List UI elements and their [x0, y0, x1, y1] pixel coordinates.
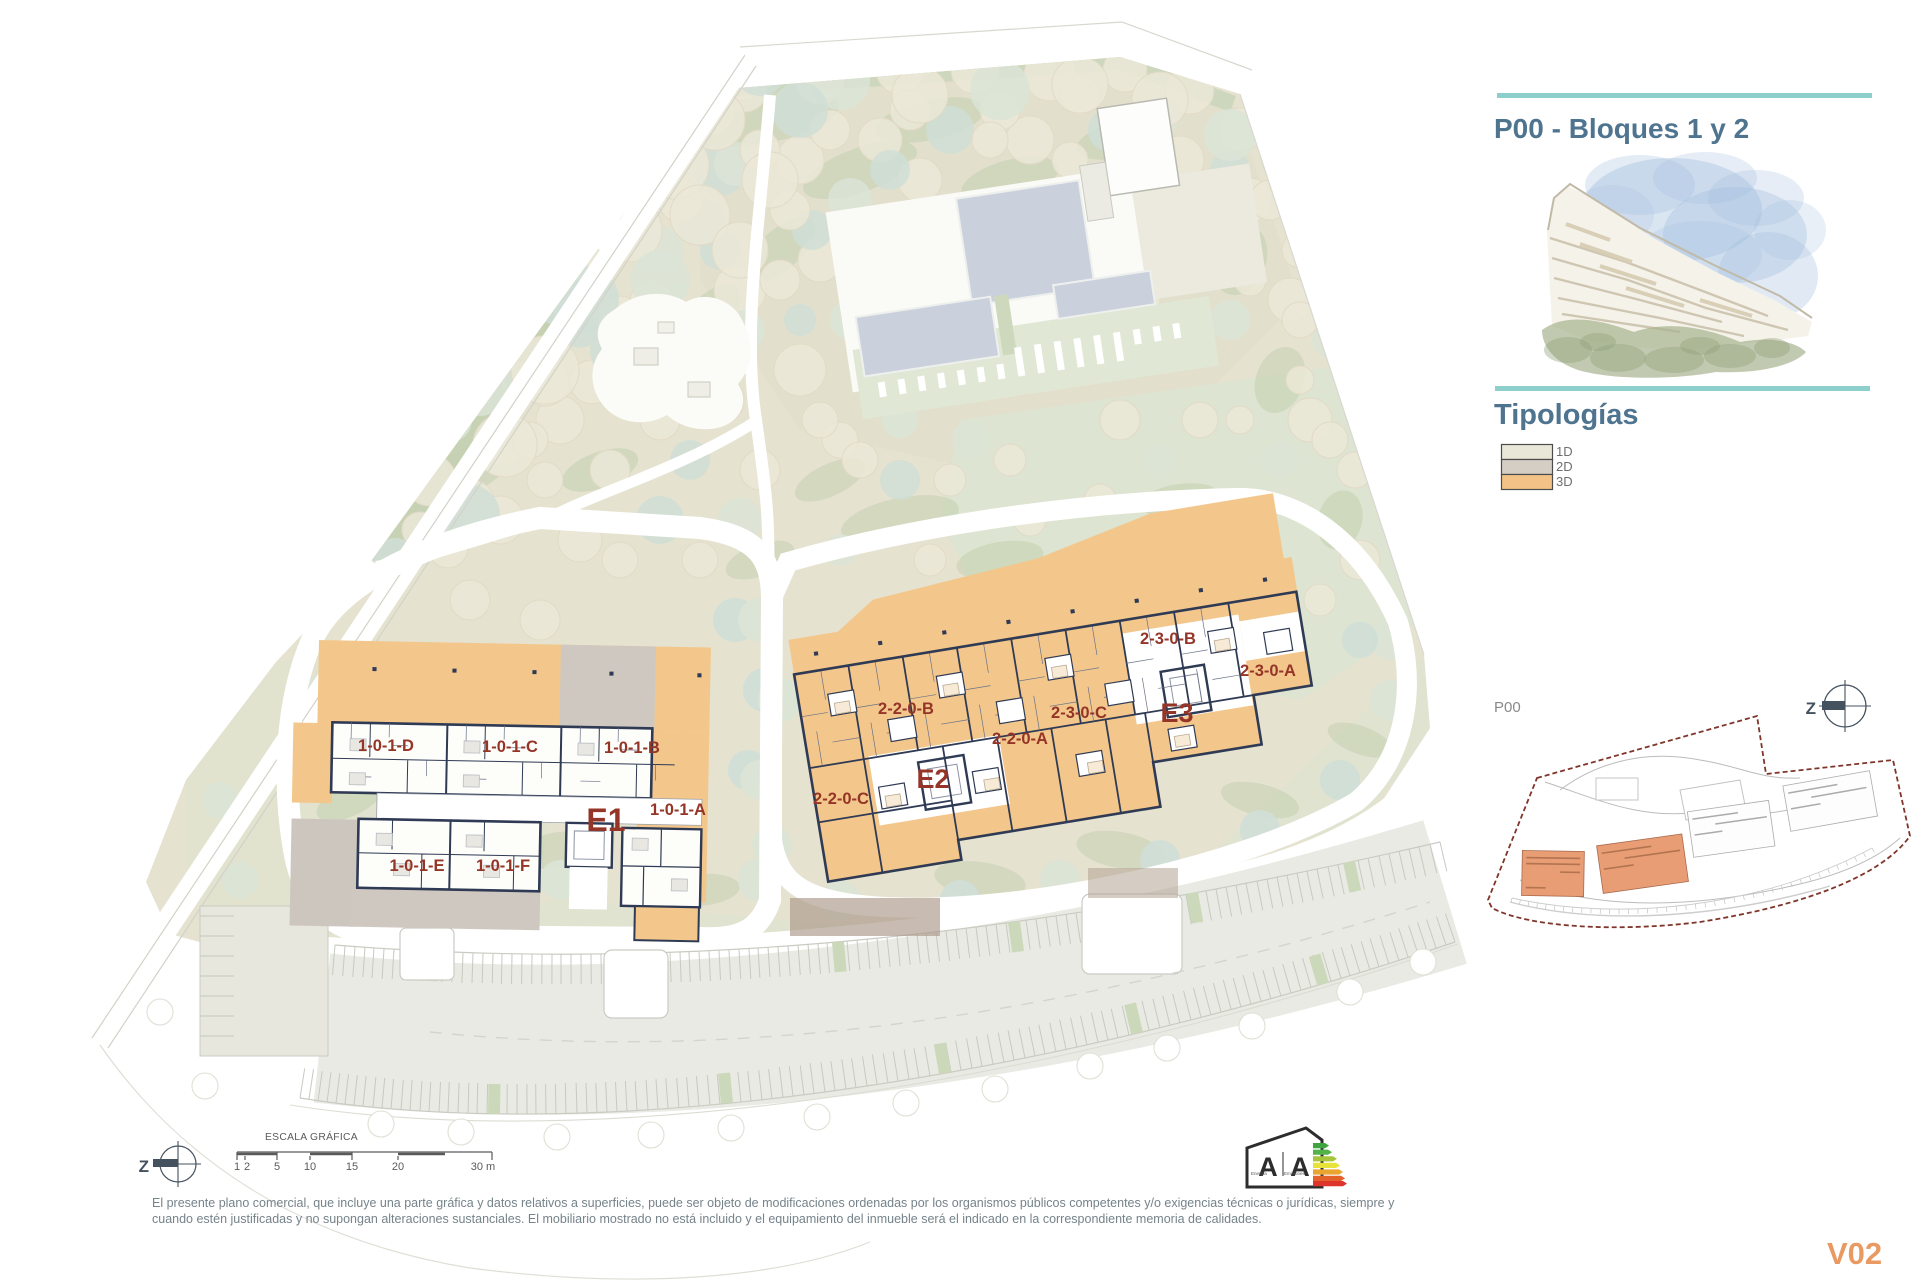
svg-text:1-0-1-A: 1-0-1-A: [650, 801, 706, 819]
svg-text:2-3-0-C: 2-3-0-C: [1051, 704, 1107, 722]
svg-text:E2: E2: [916, 764, 949, 794]
svg-text:A: A: [1258, 1152, 1278, 1182]
svg-text:El presente plano comercial, q: El presente plano comercial, que incluye…: [152, 1196, 1395, 1210]
svg-text:1: 1: [234, 1161, 240, 1173]
svg-text:P00 - Bloques 1 y 2: P00 - Bloques 1 y 2: [1494, 113, 1749, 144]
svg-text:5: 5: [274, 1161, 280, 1173]
svg-text:E1: E1: [586, 802, 625, 838]
svg-text:Energía: Energía: [1251, 1171, 1267, 1176]
svg-text:3D: 3D: [1556, 474, 1573, 489]
svg-text:2-2-0-B: 2-2-0-B: [878, 700, 934, 718]
svg-text:Tipologías: Tipologías: [1494, 399, 1638, 431]
svg-text:2-3-0-B: 2-3-0-B: [1140, 630, 1196, 648]
svg-text:1-0-1-F: 1-0-1-F: [476, 857, 530, 875]
svg-text:2-2-0-A: 2-2-0-A: [992, 730, 1048, 748]
svg-text:P00: P00: [1494, 699, 1521, 716]
svg-text:E3: E3: [1160, 698, 1193, 728]
svg-text:2-3-0-A: 2-3-0-A: [1240, 662, 1296, 680]
svg-text:ESCALA GRÁFICA: ESCALA GRÁFICA: [265, 1130, 358, 1143]
svg-text:Z: Z: [1806, 699, 1816, 718]
svg-text:V02: V02: [1827, 1236, 1882, 1271]
svg-text:20: 20: [392, 1161, 404, 1173]
svg-text:1-0-1-B: 1-0-1-B: [604, 739, 660, 757]
svg-text:10: 10: [304, 1161, 316, 1173]
svg-text:1-0-1-E: 1-0-1-E: [389, 857, 444, 875]
svg-text:1-0-1-C: 1-0-1-C: [482, 738, 538, 756]
svg-text:Z: Z: [139, 1157, 149, 1176]
svg-text:2-2-0-C: 2-2-0-C: [813, 790, 869, 808]
svg-text:30 m: 30 m: [471, 1161, 495, 1173]
svg-text:A: A: [1290, 1152, 1310, 1182]
svg-text:1-0-1-D: 1-0-1-D: [358, 737, 414, 755]
svg-text:2D: 2D: [1556, 459, 1573, 474]
svg-text:2: 2: [244, 1161, 250, 1173]
svg-text:cuando estén justificadas y no: cuando estén justificadas y no supongan …: [152, 1212, 1262, 1226]
svg-text:1D: 1D: [1556, 444, 1573, 459]
svg-text:15: 15: [346, 1161, 358, 1173]
svg-text:Emisiones: Emisiones: [1284, 1171, 1306, 1176]
